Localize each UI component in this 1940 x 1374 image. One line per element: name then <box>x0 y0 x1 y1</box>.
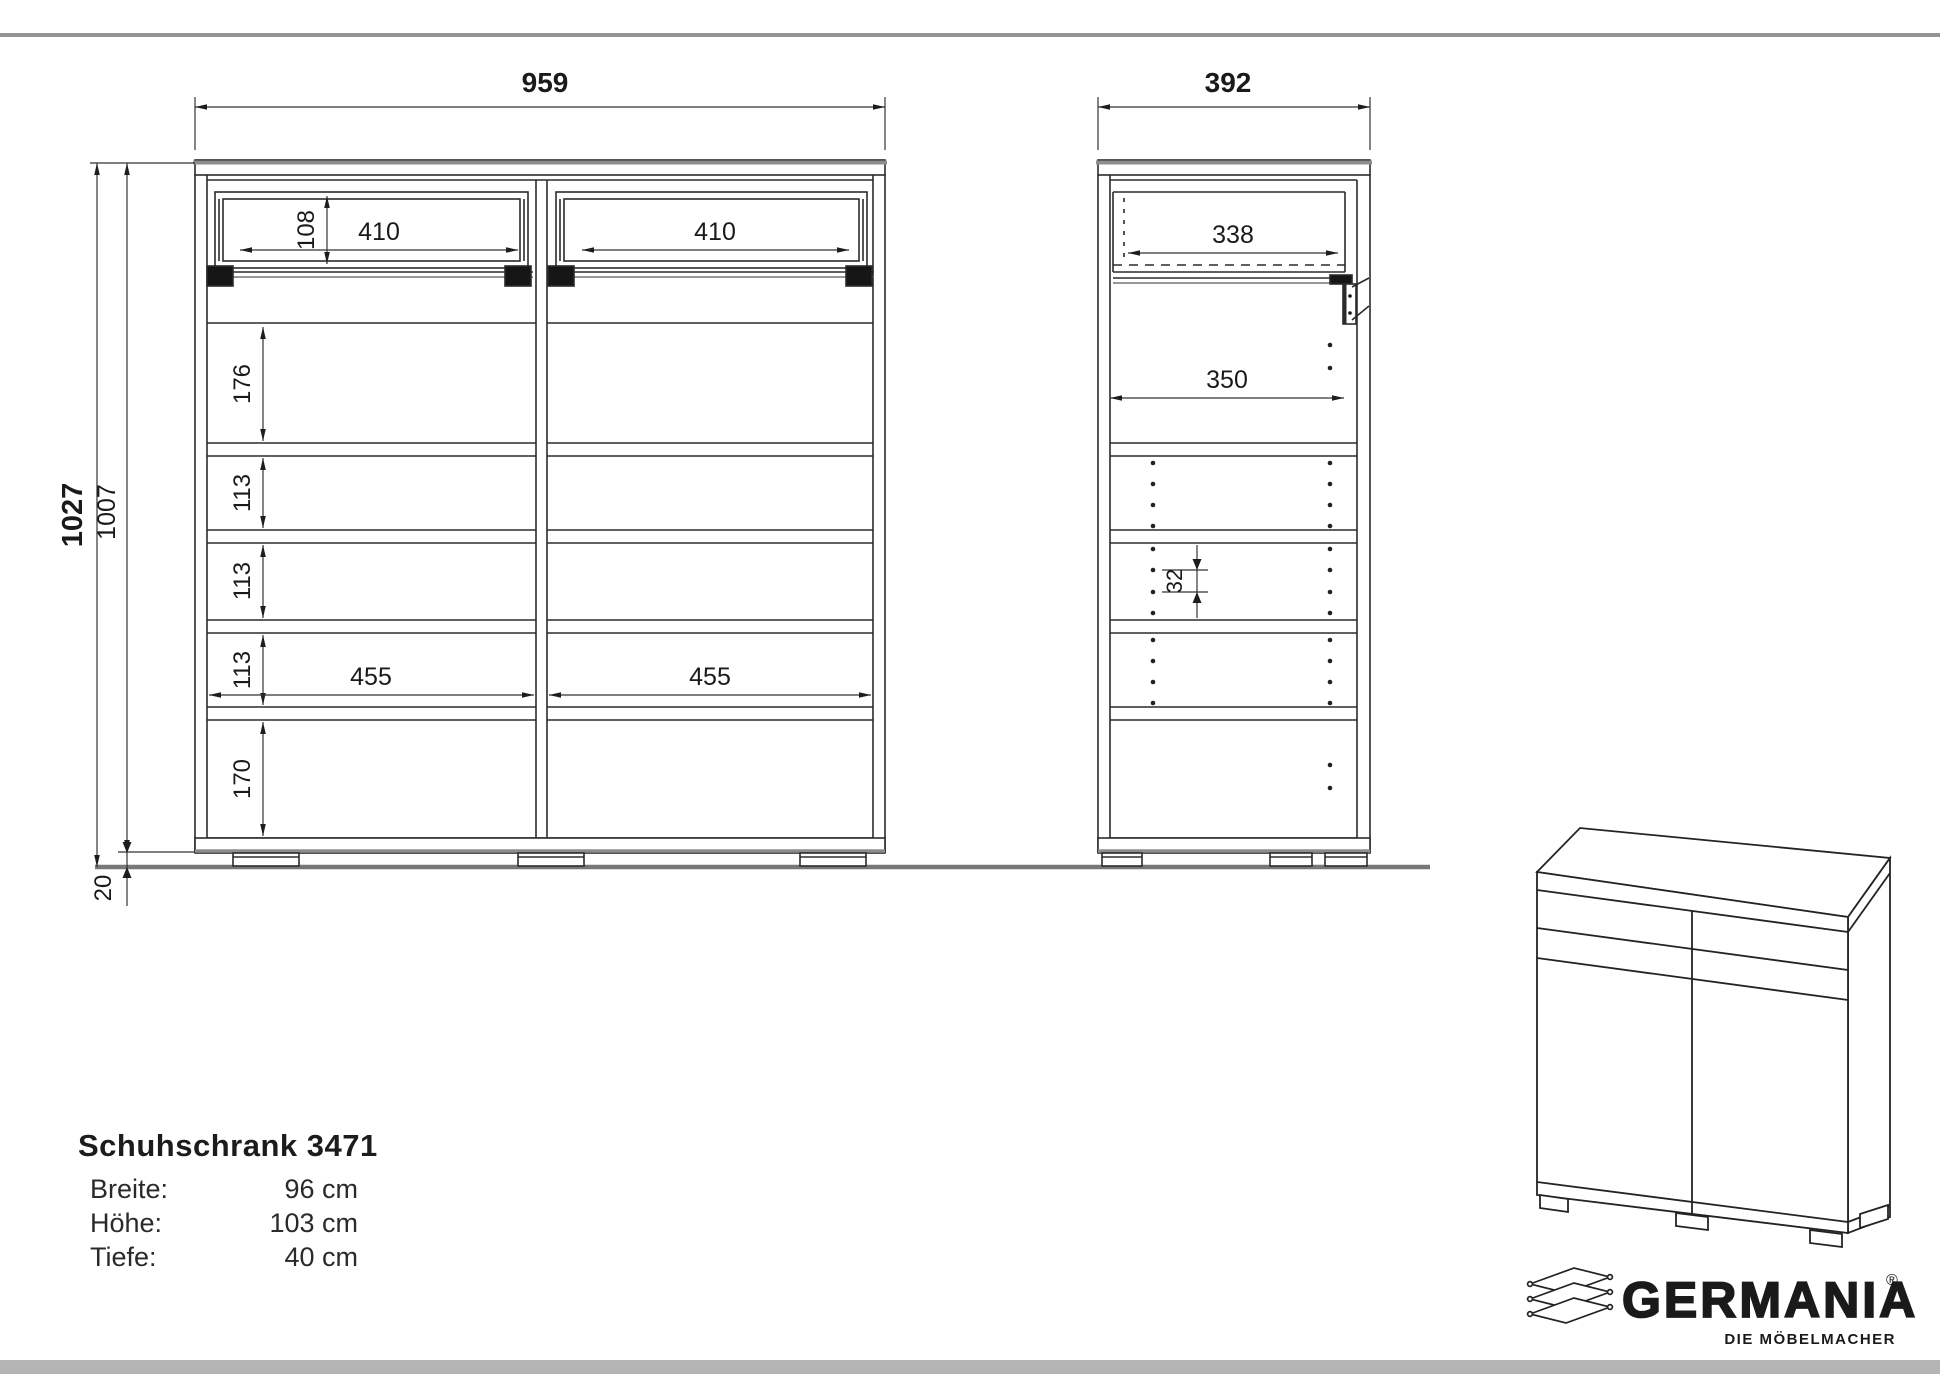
brand-tagline: DIE MÖBELMACHER <box>1724 1331 1896 1348</box>
bottom-divider-bar <box>0 1360 1940 1374</box>
shelves-front <box>207 443 873 720</box>
dim-front-height-total: 1027 <box>57 483 89 548</box>
dim-compartment-left: 455 <box>350 663 392 691</box>
dim-drawer-width-right: 410 <box>694 218 736 246</box>
spec-row-height: Höhe: 103 cm <box>78 1206 378 1240</box>
dim-front-width: 959 <box>522 67 569 98</box>
spec-label-depth: Tiefe: <box>78 1240 240 1274</box>
dim-compartment-right: 455 <box>689 663 731 691</box>
dim-gap-2: 113 <box>229 562 256 600</box>
dim-hole-pitch: 32 <box>1162 569 1187 593</box>
dim-drawer-width-left: 410 <box>358 218 400 246</box>
dim-drawer-height: 108 <box>293 210 320 250</box>
side-view <box>1096 160 1372 866</box>
dim-gap-3: 113 <box>229 651 256 689</box>
spec-value-width: 96 cm <box>240 1172 358 1206</box>
spec-label-height: Höhe: <box>78 1206 240 1240</box>
dim-gap-1: 113 <box>229 474 256 512</box>
spec-value-height: 103 cm <box>240 1206 358 1240</box>
germania-boards-icon <box>1528 1268 1613 1323</box>
title-block: Schuhschrank 3471 Breite: 96 cm Höhe: 10… <box>78 1128 378 1274</box>
dim-front-height-carcass: 1007 <box>93 484 121 540</box>
peg-holes <box>1151 343 1333 791</box>
perspective-view <box>1537 828 1890 1247</box>
dim-front-plinth: 20 <box>90 875 117 902</box>
product-title: Schuhschrank 3471 <box>78 1128 378 1164</box>
brand-logo: GERMANIA ® DIE MÖBELMACHER <box>1528 1268 1919 1348</box>
flap-fitting-detail <box>1343 278 1369 324</box>
spec-row-width: Breite: 96 cm <box>78 1172 378 1206</box>
brand-registered-mark: ® <box>1886 1272 1898 1289</box>
dim-gap-bottom: 170 <box>229 759 256 799</box>
front-view-dimensions <box>90 97 885 906</box>
shelves-side <box>1110 443 1357 720</box>
feet-side <box>1102 853 1367 866</box>
spec-row-depth: Tiefe: 40 cm <box>78 1240 378 1274</box>
dim-gap-top: 176 <box>229 364 256 404</box>
technical-drawing-page: 959 1027 1007 20 108 410 410 176 113 113… <box>0 0 1940 1374</box>
dim-drawer-depth: 338 <box>1212 221 1254 249</box>
feet-front <box>233 853 866 866</box>
side-view-dimension-labels: 392 338 350 32 <box>1162 67 1254 593</box>
brand-wordmark: GERMANIA <box>1622 1272 1918 1328</box>
dim-shelf-depth: 350 <box>1206 366 1248 394</box>
spec-label-width: Breite: <box>78 1172 240 1206</box>
front-view <box>193 160 887 866</box>
dim-side-depth: 392 <box>1205 67 1252 98</box>
spec-value-depth: 40 cm <box>240 1240 358 1274</box>
